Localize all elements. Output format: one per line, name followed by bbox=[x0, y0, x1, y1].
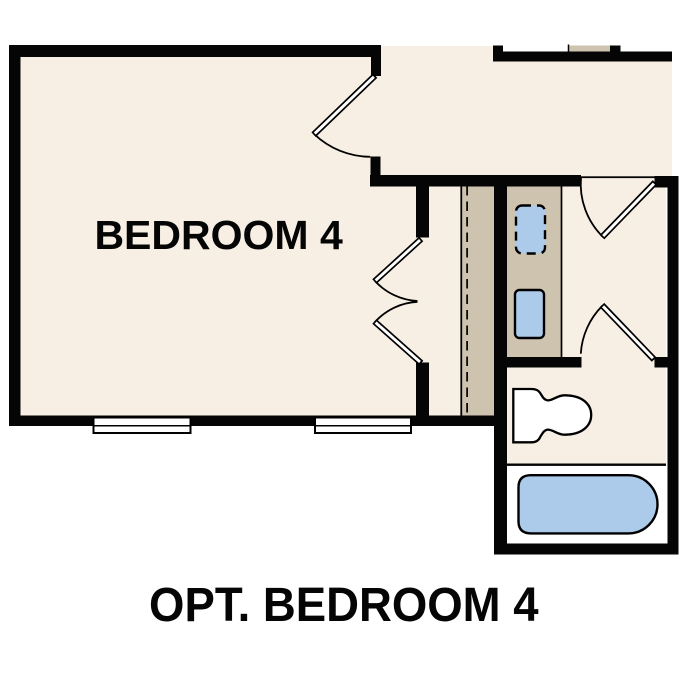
svg-text:OPT. BEDROOM 4: OPT. BEDROOM 4 bbox=[149, 577, 539, 632]
svg-text:BEDROOM 4: BEDROOM 4 bbox=[94, 212, 343, 258]
